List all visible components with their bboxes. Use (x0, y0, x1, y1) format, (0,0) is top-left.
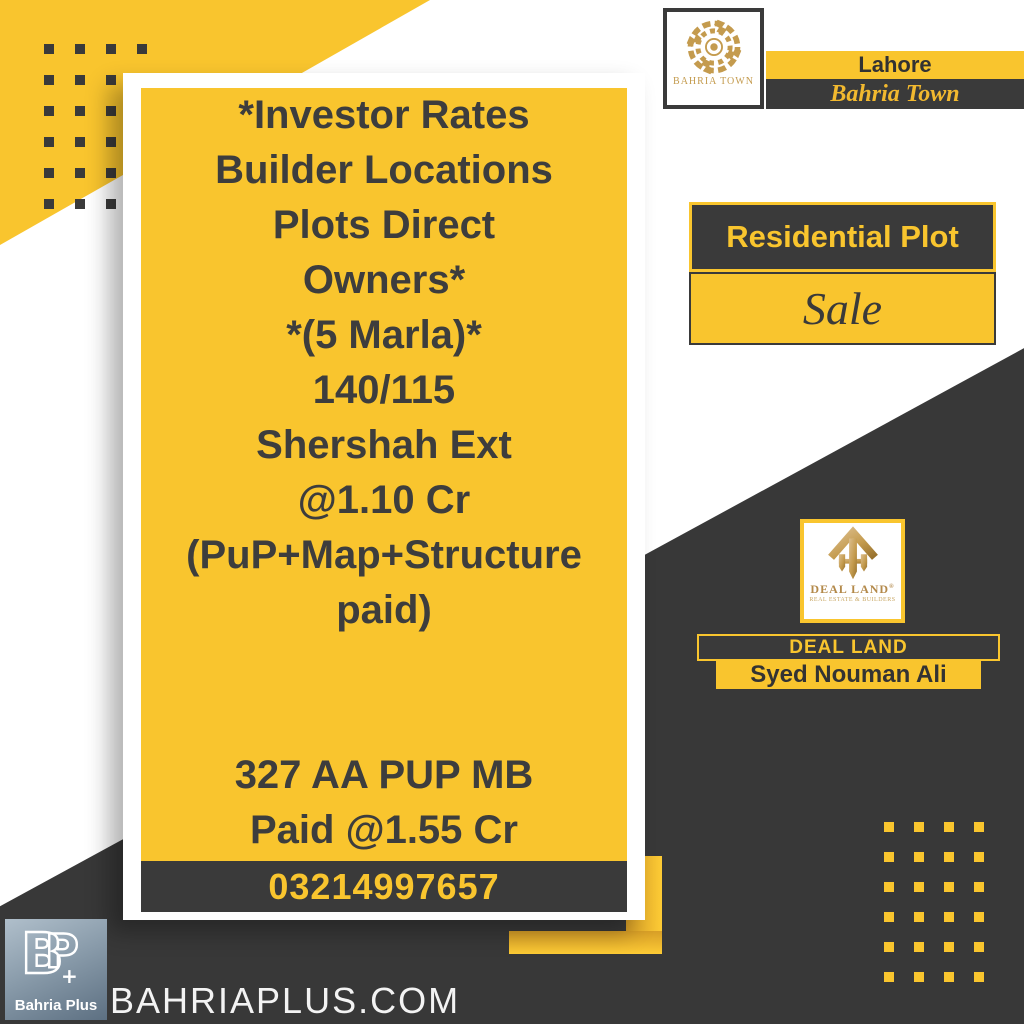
bahria-plus-monogram-icon: B P + (19, 921, 93, 993)
dot (75, 44, 85, 54)
bahria-plus-logo: B P + Bahria Plus (5, 919, 107, 1020)
dot (44, 168, 54, 178)
dot (44, 44, 54, 54)
dot (974, 942, 984, 952)
dot (884, 882, 894, 892)
dot (914, 912, 924, 922)
dot (106, 75, 116, 85)
bahria-plus-label: Bahria Plus (15, 997, 98, 1014)
listing-text-line (141, 638, 627, 693)
listing-text-line: paid) (141, 583, 627, 638)
dot (44, 106, 54, 116)
dot (914, 972, 924, 982)
dot (75, 168, 85, 178)
dot (75, 199, 85, 209)
listing-type-box: Residential Plot (689, 202, 996, 272)
property-flyer: *Investor RatesBuilder LocationsPlots Di… (0, 0, 1024, 1024)
dot (944, 852, 954, 862)
yellow-corner-bracket-horizontal (509, 931, 662, 954)
listing-text-line: Plots Direct (141, 198, 627, 253)
bahria-town-emblem-icon (683, 16, 745, 78)
website-text: BAHRIAPLUS.COM (110, 980, 460, 1022)
listing-text-line: Paid @1.55 Cr (141, 803, 627, 858)
dot (914, 822, 924, 832)
listing-text-line: (PuP+Map+Structure (141, 528, 627, 583)
phone-bar: 03214997657 (141, 861, 627, 912)
dot (974, 912, 984, 922)
dot (974, 822, 984, 832)
sale-status-label: Sale (803, 282, 882, 335)
listing-text-line: Builder Locations (141, 143, 627, 198)
listing-card: *Investor RatesBuilder LocationsPlots Di… (123, 73, 645, 920)
svg-text:+: + (61, 964, 78, 988)
dots-pattern-bottom-right (884, 822, 984, 982)
dot (106, 168, 116, 178)
dot (44, 199, 54, 209)
listing-text-line: *Investor Rates (141, 88, 627, 143)
dot (44, 137, 54, 147)
dot (944, 972, 954, 982)
listing-text-line: 140/115 (141, 363, 627, 418)
dot (75, 75, 85, 85)
dot (974, 972, 984, 982)
dot (106, 137, 116, 147)
dot (914, 852, 924, 862)
dot (75, 137, 85, 147)
dot (944, 822, 954, 832)
bahria-town-logo-text: BAHRIA TOWN (673, 76, 754, 87)
listing-text-line: Shershah Ext (141, 418, 627, 473)
dot (106, 199, 116, 209)
dot (944, 912, 954, 922)
bahria-town-label: Bahria Town (830, 81, 959, 108)
dot (106, 44, 116, 54)
company-label: DEAL LAND (789, 637, 907, 659)
listing-type-label: Residential Plot (726, 219, 959, 255)
bahria-town-bar: Bahria Town (766, 79, 1024, 109)
dot (944, 942, 954, 952)
deal-land-tagline: REAL ESTATE & BUILDERS (809, 597, 895, 603)
sale-status-box: Sale (689, 272, 996, 345)
dot (884, 852, 894, 862)
listing-text-line: 327 AA PUP MB (141, 748, 627, 803)
dot (914, 882, 924, 892)
city-bar: Lahore (766, 51, 1024, 79)
listing-text-line: *(5 Marla)* (141, 308, 627, 363)
deal-land-house-icon (825, 526, 881, 584)
deal-land-logo-text: DEAL LAND® (810, 582, 894, 597)
agent-name-bar: Syed Nouman Ali (716, 661, 981, 689)
company-bar: DEAL LAND (697, 634, 1000, 661)
deal-land-logo-box: DEAL LAND® REAL ESTATE & BUILDERS (800, 519, 905, 623)
dot (944, 882, 954, 892)
bahria-town-logo-box: BAHRIA TOWN (663, 8, 764, 109)
dot (44, 75, 54, 85)
listing-text-line: @1.10 Cr (141, 473, 627, 528)
dot (884, 972, 894, 982)
dot (884, 912, 894, 922)
dot (137, 44, 147, 54)
dot (75, 106, 85, 116)
dot (914, 942, 924, 952)
phone-number: 03214997657 (268, 866, 499, 908)
agent-name-label: Syed Nouman Ali (750, 661, 946, 689)
city-label: Lahore (858, 52, 931, 78)
listing-text-line: Owners* (141, 253, 627, 308)
listing-text-line (141, 693, 627, 748)
dot (884, 942, 894, 952)
dot (884, 822, 894, 832)
dot (974, 882, 984, 892)
dot (106, 106, 116, 116)
listing-text-block: *Investor RatesBuilder LocationsPlots Di… (141, 88, 627, 861)
dot (974, 852, 984, 862)
